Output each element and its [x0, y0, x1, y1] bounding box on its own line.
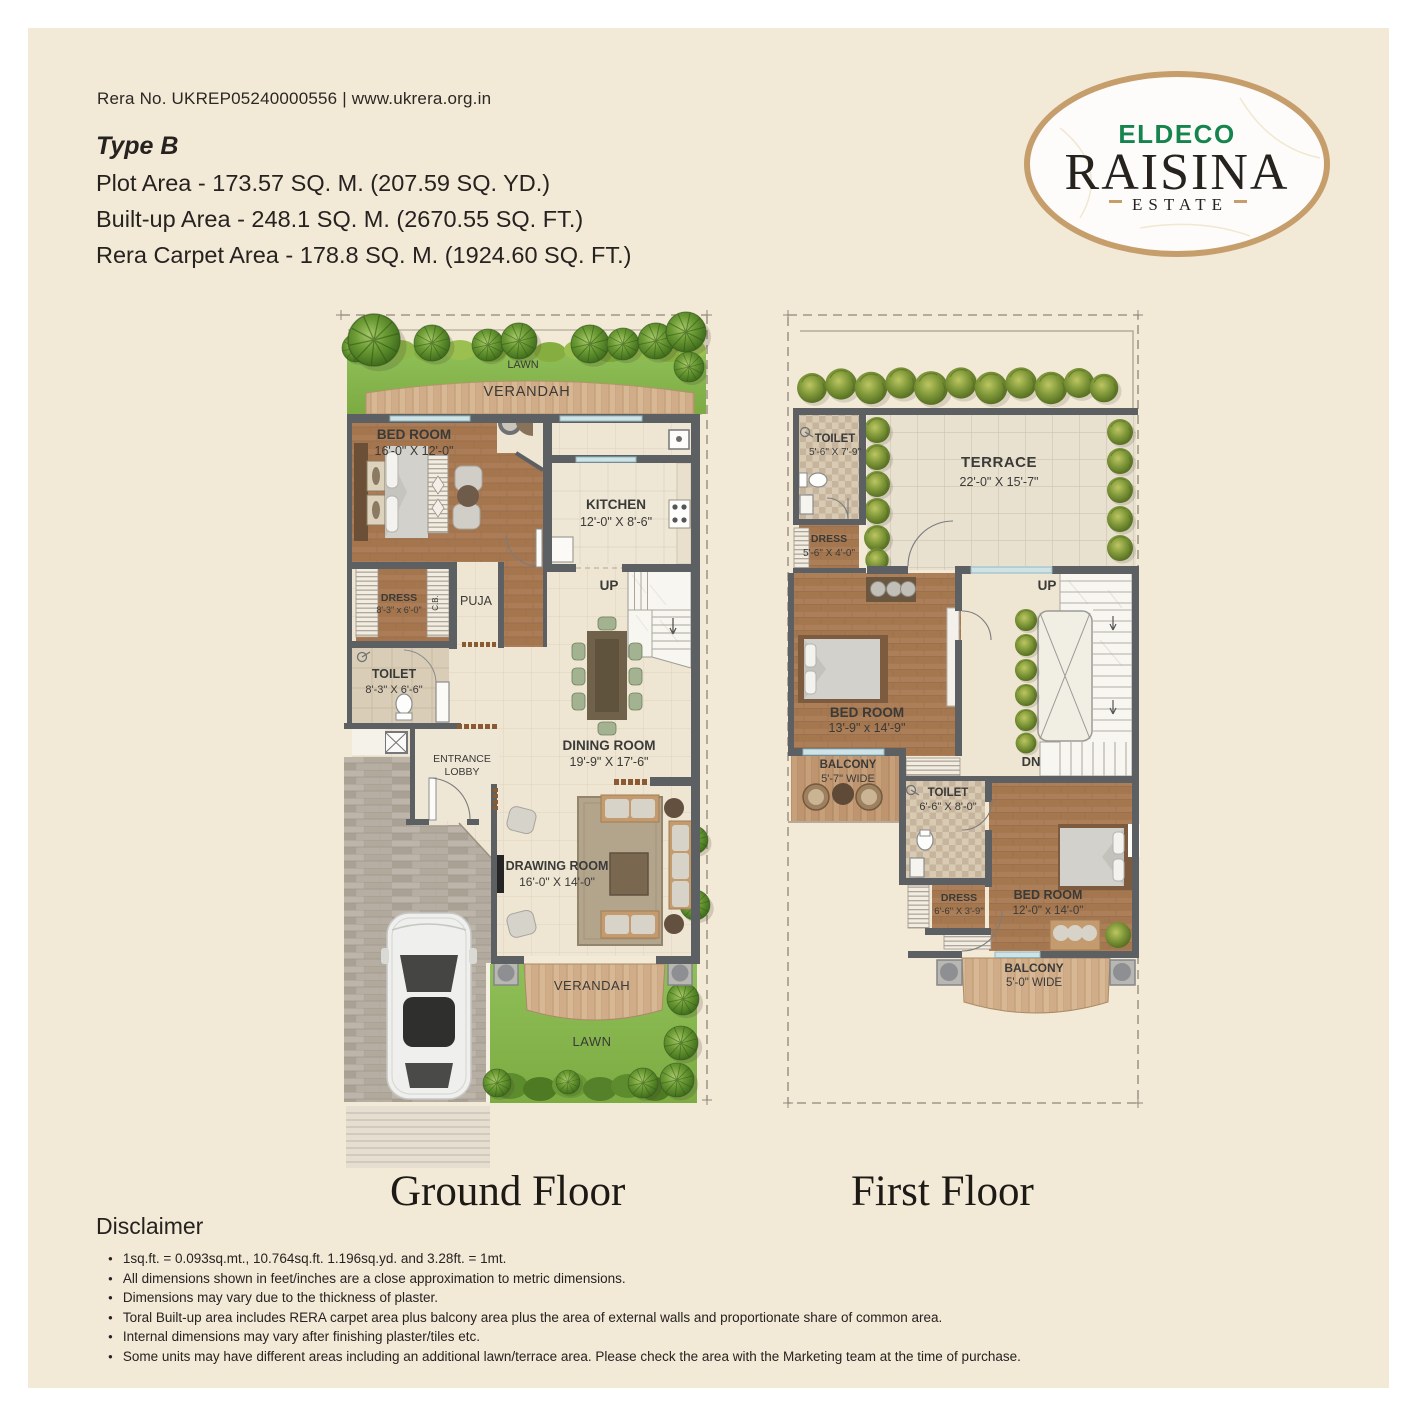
svg-text:13'-9" x 14'-9": 13'-9" x 14'-9" — [829, 721, 906, 735]
svg-text:6'-6" X 8'-0": 6'-6" X 8'-0" — [919, 801, 976, 813]
svg-text:22'-0" X 15'-7": 22'-0" X 15'-7" — [960, 475, 1039, 489]
svg-text:DRESS: DRESS — [381, 592, 417, 604]
svg-text:8'-3" x 6'-0": 8'-3" x 6'-0" — [376, 605, 421, 615]
svg-text:DRESS: DRESS — [811, 533, 847, 545]
svg-text:BED ROOM: BED ROOM — [1014, 888, 1083, 902]
svg-text:16'-0" X 12'-0": 16'-0" X 12'-0" — [375, 444, 454, 458]
svg-text:DN: DN — [1022, 754, 1041, 769]
svg-text:KITCHEN: KITCHEN — [586, 497, 646, 512]
svg-text:5'-6" X 4'-0": 5'-6" X 4'-0" — [803, 548, 856, 559]
svg-text:PUJA: PUJA — [460, 594, 493, 608]
svg-text:8'-3" X 6'-6": 8'-3" X 6'-6" — [365, 684, 422, 696]
svg-text:BALCONY: BALCONY — [820, 759, 877, 771]
svg-text:6'-6" X 3'-9": 6'-6" X 3'-9" — [934, 906, 983, 917]
svg-text:ESTATE: ESTATE — [1132, 195, 1228, 214]
svg-text:RAISINA: RAISINA — [1065, 144, 1290, 201]
svg-text:5'-0" WIDE: 5'-0" WIDE — [1006, 977, 1062, 989]
svg-text:16'-0" X 14'-0": 16'-0" X 14'-0" — [519, 875, 595, 889]
svg-text:VERANDAH: VERANDAH — [484, 384, 571, 400]
svg-text:DINING ROOM: DINING ROOM — [563, 738, 656, 753]
svg-text:BALCONY: BALCONY — [1004, 961, 1063, 975]
svg-text:LAWN: LAWN — [507, 359, 538, 371]
svg-text:TOILET: TOILET — [928, 787, 969, 799]
svg-text:UP: UP — [600, 578, 619, 593]
svg-text:TOILET: TOILET — [372, 667, 417, 681]
svg-text:UP: UP — [1038, 578, 1057, 593]
svg-text:19'-9" X 17'-6": 19'-9" X 17'-6" — [570, 755, 649, 769]
svg-text:BED ROOM: BED ROOM — [377, 427, 451, 442]
svg-text:ENTRANCE: ENTRANCE — [433, 753, 491, 765]
svg-text:5'-7" WIDE: 5'-7" WIDE — [821, 773, 875, 785]
svg-text:5'-6" X 7'-9": 5'-6" X 7'-9" — [809, 447, 862, 458]
svg-text:DRESS: DRESS — [941, 892, 977, 904]
svg-text:TERRACE: TERRACE — [961, 454, 1037, 471]
svg-text:12'-0" x 14'-0": 12'-0" x 14'-0" — [1013, 905, 1084, 917]
svg-text:DRAWING ROOM: DRAWING ROOM — [506, 859, 609, 873]
svg-text:C.B.: C.B. — [431, 595, 440, 611]
svg-text:VERANDAH: VERANDAH — [554, 978, 630, 993]
svg-text:12'-0" X 8'-6": 12'-0" X 8'-6" — [580, 515, 652, 529]
svg-text:LAWN: LAWN — [572, 1034, 611, 1049]
svg-text:TOILET: TOILET — [815, 433, 856, 445]
svg-text:LOBBY: LOBBY — [444, 766, 479, 778]
svg-text:BED ROOM: BED ROOM — [830, 705, 904, 720]
